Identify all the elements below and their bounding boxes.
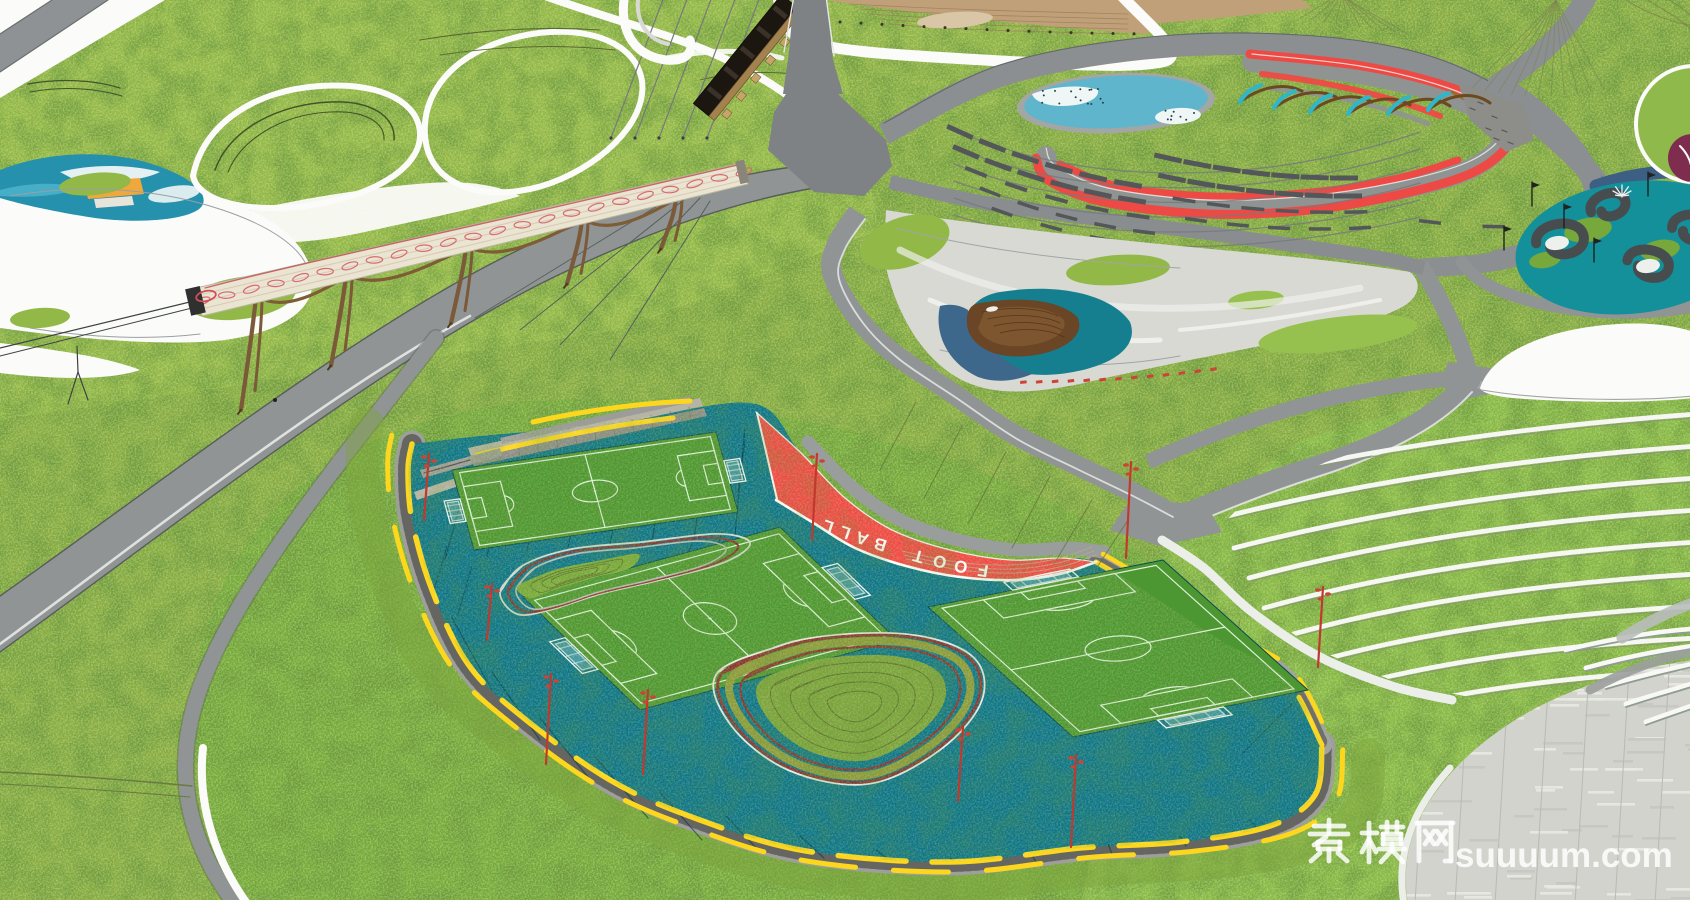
svg-text:suuuum.com: suuuum.com [1455,836,1673,875]
